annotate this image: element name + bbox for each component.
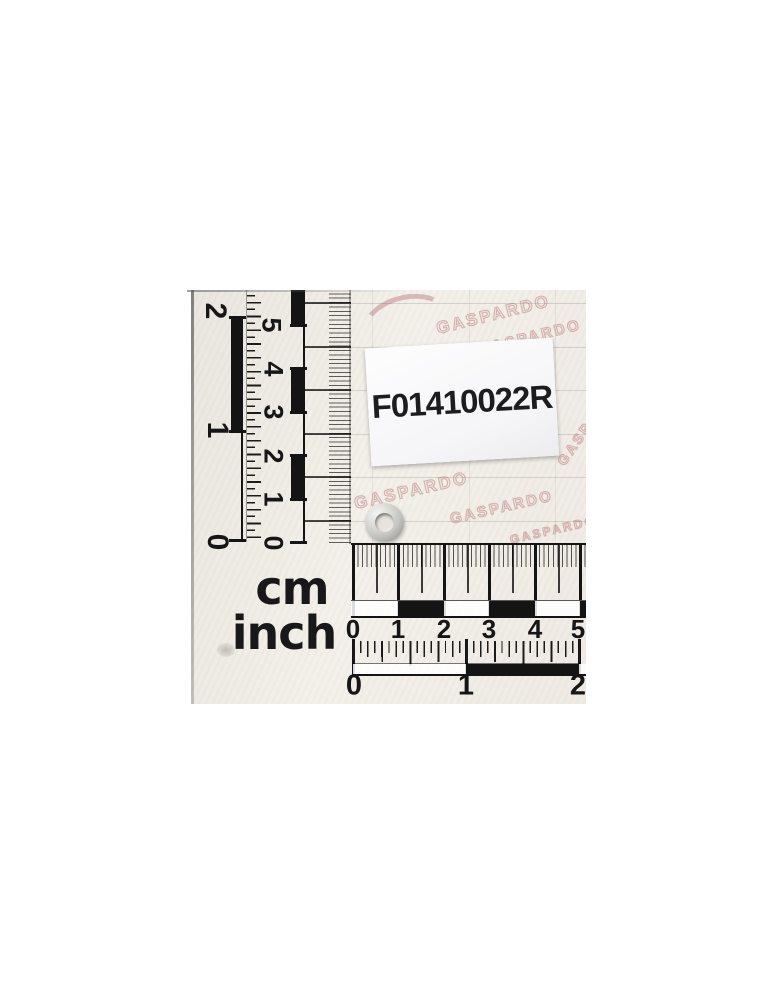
scale-bar-segment: [466, 664, 579, 674]
inch-tick: [229, 430, 246, 433]
ruler-edge-line: [349, 287, 351, 544]
part-number-sticker: F01410022R: [365, 338, 559, 467]
scale-number: 3: [482, 616, 496, 642]
scale-number: 0: [202, 534, 232, 551]
page-background: GASPARDO GASPARDO GASPARDO GASPARDO GASP…: [0, 0, 771, 1000]
scale-number: 4: [528, 616, 542, 642]
scale-number: 2: [570, 672, 586, 701]
half-cm-tick: [421, 545, 423, 593]
half-cm-tick: [376, 545, 378, 593]
scale-bar-line: [303, 287, 305, 544]
paper-smudge: [217, 643, 235, 657]
part-number-text: F01410022R: [371, 378, 554, 426]
scale-bar-row: [351, 600, 586, 617]
photo-edge-shadow: [187, 290, 407, 292]
washer-object: [365, 503, 404, 542]
scale-number: 5: [258, 317, 285, 332]
half-cm-tick: [512, 545, 514, 593]
scale-number: 0: [260, 535, 287, 550]
scale-number: 4: [260, 361, 287, 376]
scale-number: 1: [458, 672, 474, 701]
product-photo: GASPARDO GASPARDO GASPARDO GASPARDO GASP…: [187, 287, 586, 704]
washer-hole: [375, 513, 394, 532]
scale-number: 1: [260, 491, 287, 506]
scale-number: 3: [260, 404, 287, 419]
scale-number: 1: [202, 422, 232, 439]
half-cm-tick: [558, 545, 560, 593]
inch-unit-label: inch: [232, 610, 337, 656]
scale-bar-line: [351, 616, 586, 618]
scale-number: 0: [346, 672, 362, 701]
scale-number: 1: [391, 616, 405, 642]
scale-bar-line: [241, 432, 243, 541]
mm-tick-comb: [329, 289, 351, 543]
scale-number: 2: [200, 303, 230, 320]
scale-number: 2: [260, 448, 287, 463]
scale-bar-segment: [231, 316, 243, 431]
mm-tick-comb: [353, 545, 586, 567]
inch-tick: [229, 539, 246, 542]
scale-number: 2: [437, 616, 451, 642]
cm-unit-label: cm: [255, 565, 328, 611]
photo-edge-shadow: [191, 287, 194, 704]
half-cm-tick: [467, 545, 469, 593]
